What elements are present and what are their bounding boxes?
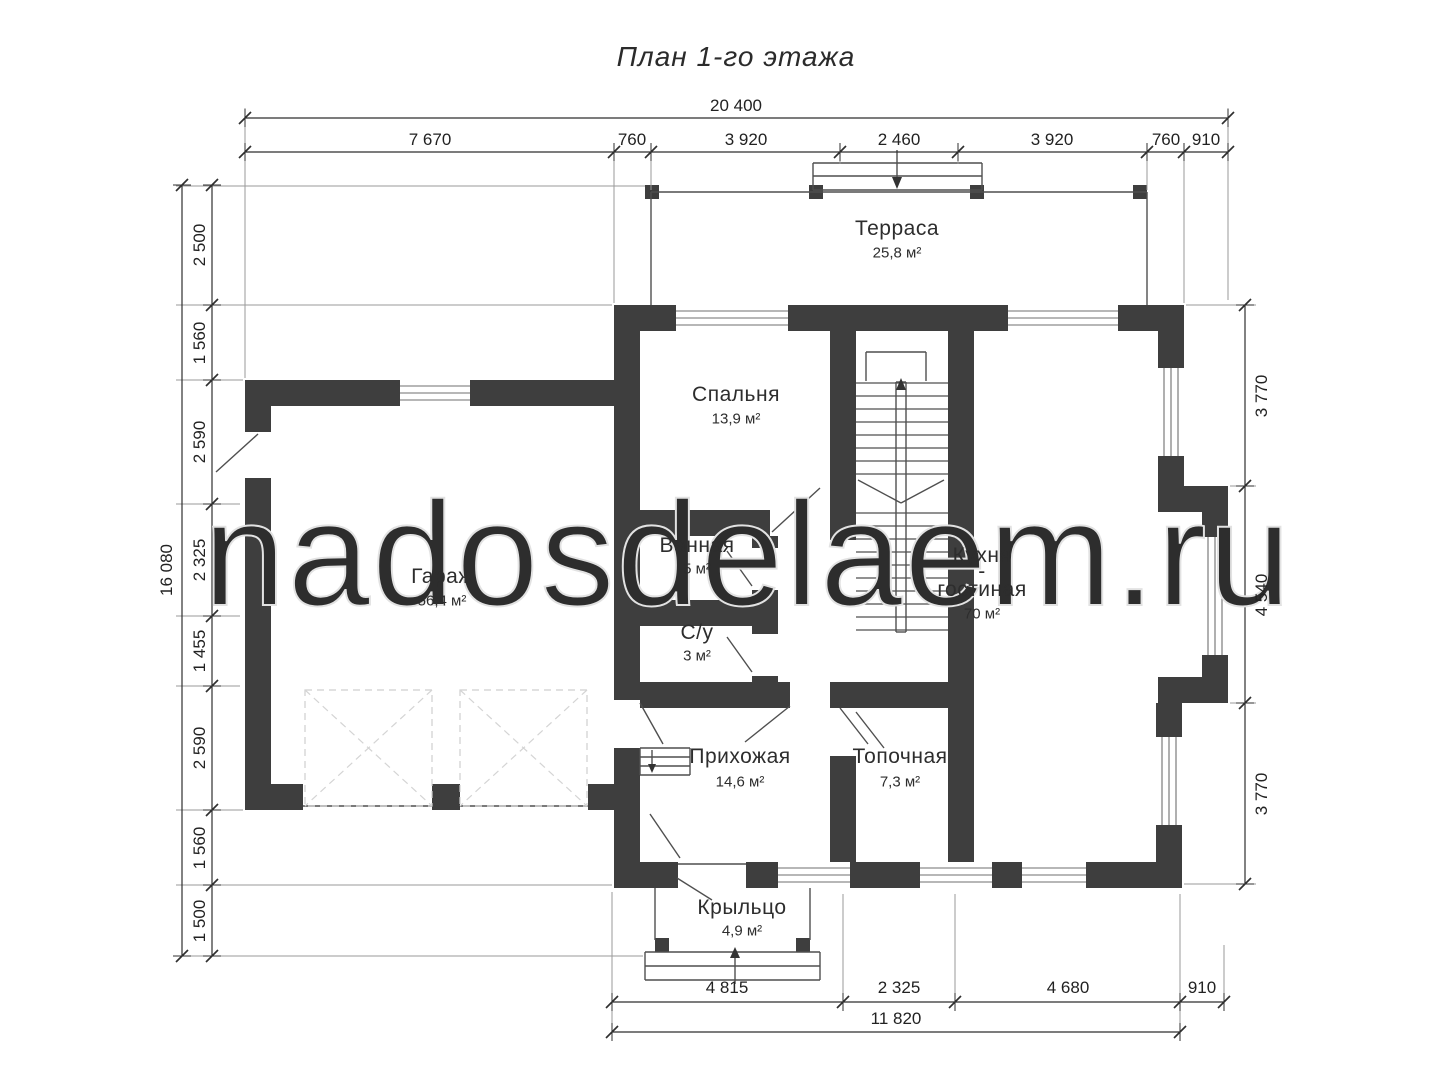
room-area-boiler: 7,3 м²	[880, 774, 920, 791]
room-label-wc: С/у	[681, 621, 714, 645]
dim-top-seg-0: 7 670	[409, 130, 452, 150]
dim-right-seg-0: 3 770	[1252, 375, 1272, 418]
plan-line	[727, 637, 752, 672]
plan-line	[856, 712, 884, 748]
plan-line	[650, 814, 680, 858]
wall	[614, 748, 640, 888]
plan-line	[745, 706, 790, 742]
plan-line	[216, 434, 258, 472]
dim-top-total: 20 400	[710, 96, 762, 116]
dim-top-seg-1: 760	[618, 130, 646, 150]
wall	[850, 862, 920, 888]
wall	[992, 862, 1022, 888]
room-area-bedroom: 13,9 м²	[712, 411, 761, 428]
room-label-bedroom: Спальня	[692, 383, 780, 407]
dim-left-total: 16 080	[157, 544, 177, 596]
wall	[1202, 655, 1228, 677]
dim-left-seg-0: 2 500	[190, 224, 210, 267]
dim-top-seg-3: 2 460	[878, 130, 921, 150]
room-label-porch: Крыльцо	[697, 896, 786, 920]
wall	[245, 380, 271, 432]
wall	[746, 862, 778, 888]
dim-top-seg-2: 3 920	[725, 130, 768, 150]
wall	[1156, 825, 1182, 862]
wall	[655, 938, 669, 952]
dim-bottom-seg-1: 2 325	[878, 978, 921, 998]
wall	[640, 682, 790, 708]
dim-top-seg-4: 3 920	[1031, 130, 1074, 150]
dim-bottom-seg-0: 4 815	[706, 978, 749, 998]
plan-line	[840, 708, 868, 744]
room-label-hallway: Прихожая	[689, 745, 790, 769]
floor-plan-page: nadosdelaem.ru План 1-го этажа 20 400 7 …	[0, 0, 1440, 1080]
room-label-living: гостиная	[937, 578, 1026, 602]
room-label-terrace: Терраса	[855, 217, 939, 241]
dim-left-seg-7: 1 500	[190, 900, 210, 943]
dim-bottom-total: 11 820	[871, 1009, 922, 1029]
wall	[830, 756, 856, 862]
room-label-boiler: Топочная	[852, 745, 947, 769]
dim-left-seg-4: 1 455	[190, 630, 210, 673]
room-area-garage: 56,4 м²	[418, 593, 467, 610]
dim-top-seg-5: 760	[1152, 130, 1180, 150]
dim-left-seg-5: 2 590	[190, 727, 210, 770]
plan-line	[640, 703, 663, 744]
dim-left-seg-6: 1 560	[190, 827, 210, 870]
wall	[588, 784, 614, 810]
room-label-garage: Гараж	[411, 565, 473, 589]
wall	[271, 784, 303, 810]
direction-arrow	[648, 764, 656, 773]
dim-right-seg-1: 4 540	[1252, 574, 1272, 617]
wall	[1158, 331, 1184, 368]
wall	[788, 305, 1008, 331]
room-area-hallway: 14,6 м²	[716, 774, 765, 791]
watermark: nadosdelaem.ru	[203, 470, 1292, 640]
room-area-wc: 3 м²	[683, 648, 711, 665]
room-area-bathroom: 5 м²	[683, 561, 711, 578]
dim-left-seg-2: 2 590	[190, 421, 210, 464]
dim-left-seg-3: 2 325	[190, 539, 210, 582]
wall	[470, 380, 614, 406]
room-area-terrace: 25,8 м²	[873, 245, 922, 262]
wall	[1158, 677, 1228, 703]
wall	[1118, 305, 1184, 331]
page-title: План 1-го этажа	[617, 41, 856, 73]
dim-top-seg-6: 910	[1192, 130, 1220, 150]
dim-right-seg-2: 3 770	[1252, 773, 1272, 816]
dim-left-seg-1: 1 560	[190, 322, 210, 365]
room-label-bathroom: Ванная	[660, 534, 735, 558]
dim-bottom-seg-3: 910	[1188, 978, 1216, 998]
room-area-porch: 4,9 м²	[722, 923, 762, 940]
wall	[432, 784, 460, 810]
room-area-kitchen: 70 м²	[964, 606, 1000, 623]
direction-arrow	[892, 177, 902, 189]
wall	[1086, 862, 1182, 888]
wall	[1156, 703, 1182, 737]
dim-bottom-seg-2: 4 680	[1047, 978, 1090, 998]
direction-arrow	[896, 378, 906, 390]
wall	[830, 682, 948, 708]
wall	[796, 938, 810, 952]
